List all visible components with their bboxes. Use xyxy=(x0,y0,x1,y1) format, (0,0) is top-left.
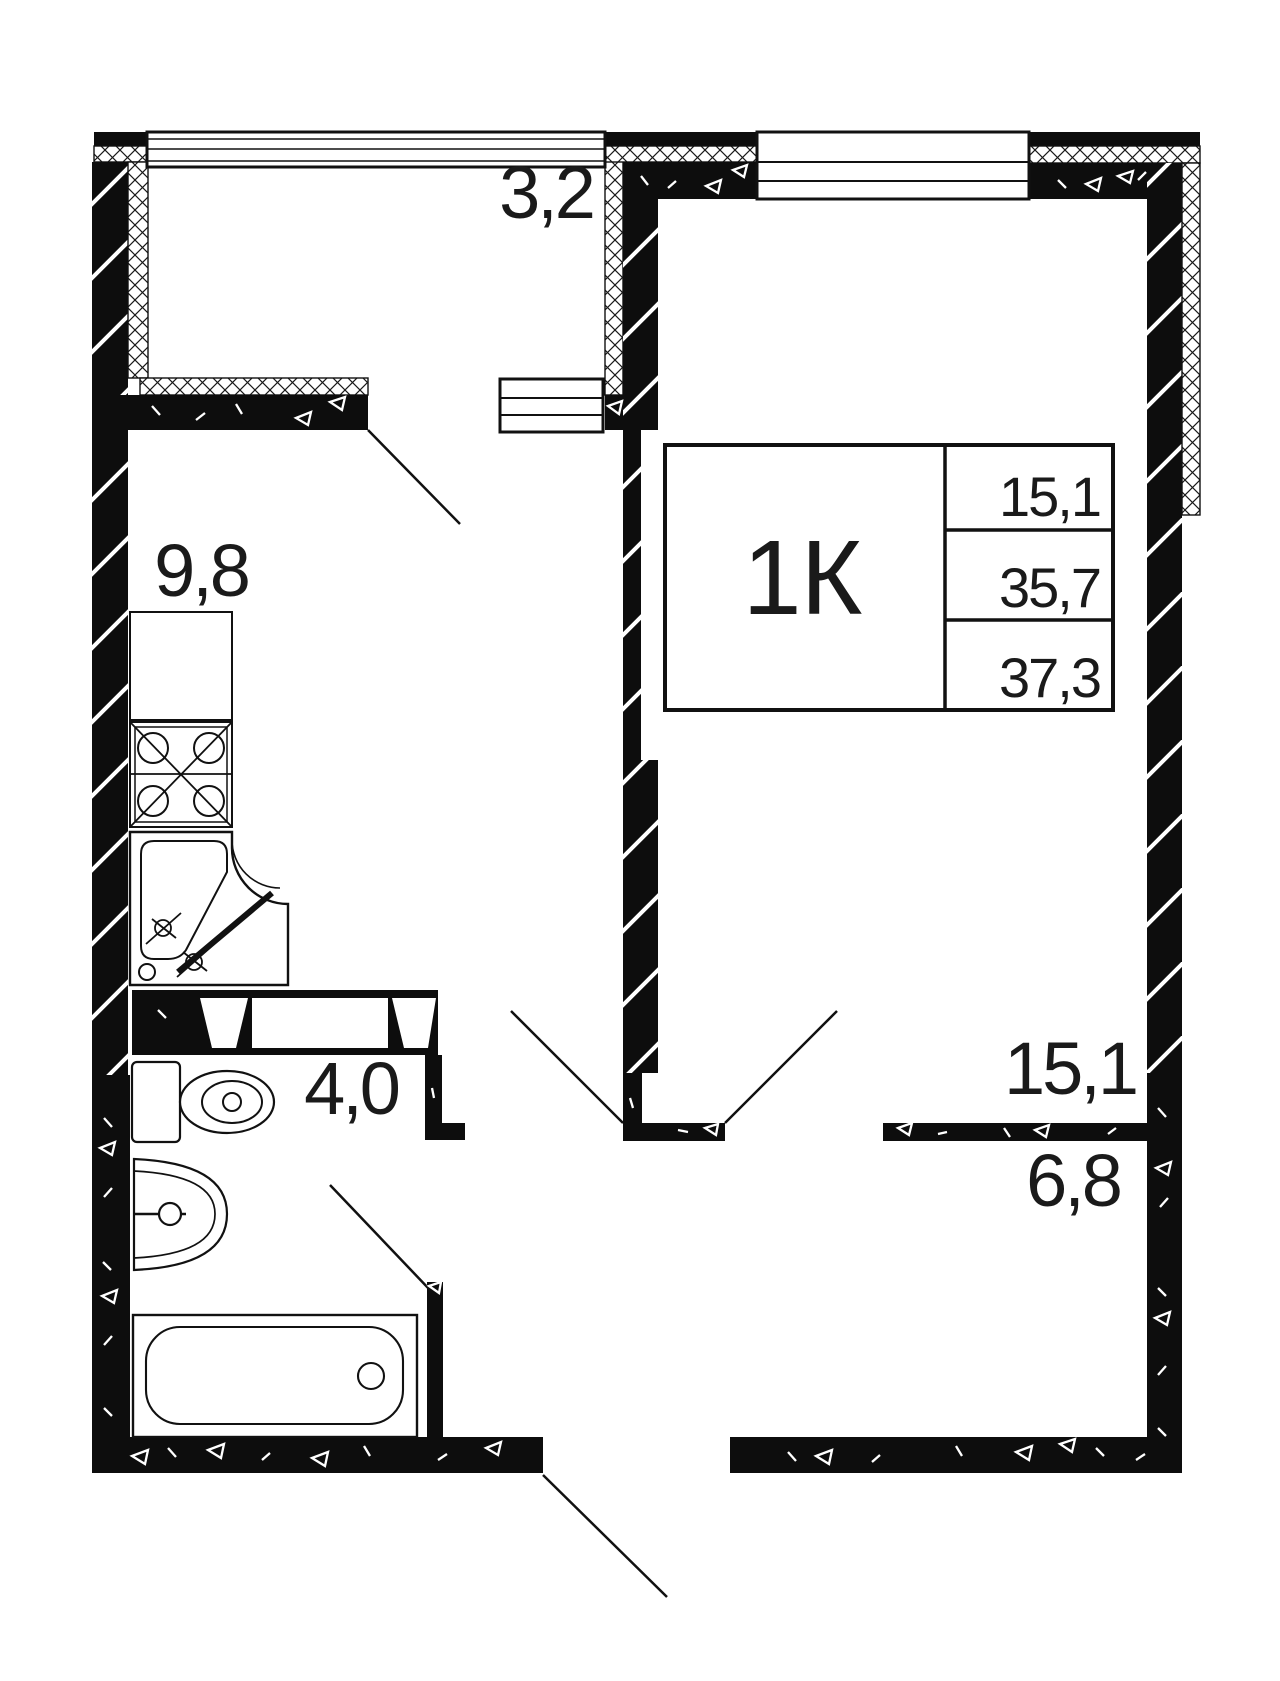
living-area-value: 15,1 xyxy=(999,465,1100,528)
kitchen-sink-icon xyxy=(130,832,288,985)
kitchen-window-icon xyxy=(500,379,603,432)
living-room-window-icon xyxy=(757,132,1029,199)
wall-top-right xyxy=(1029,132,1200,146)
wall-bottom-right xyxy=(730,1437,1182,1473)
walls xyxy=(92,132,1200,1473)
insulation-balcony-bottom xyxy=(140,378,368,395)
insulation-top-middle xyxy=(605,146,757,162)
hallway-area-label: 6,8 xyxy=(1026,1139,1120,1222)
title-block: 1К 15,1 35,7 37,3 xyxy=(665,445,1113,710)
kitchen-door-swing-icon xyxy=(511,1011,623,1123)
balcony-area-label: 3,2 xyxy=(499,151,593,234)
insulation-right xyxy=(1182,163,1200,515)
wall-top-middle xyxy=(605,132,757,146)
wall-room-divider-step xyxy=(641,430,658,760)
washbasin-icon xyxy=(133,1159,227,1270)
insulation-top-left xyxy=(94,146,147,162)
insulation-balcony-divider xyxy=(605,143,623,395)
vent-duct-center xyxy=(252,998,388,1048)
wall-top-left-pier xyxy=(94,132,147,146)
living-room-door-swing-icon xyxy=(725,1011,837,1123)
unit-type-label: 1К xyxy=(743,519,863,637)
wall-bathroom-jamb xyxy=(425,1055,465,1140)
wall-room-divider-jamb xyxy=(623,1073,642,1123)
kitchen-area-label: 9,8 xyxy=(154,529,248,612)
bathroom-area-label: 4,0 xyxy=(304,1047,399,1130)
stove-icon xyxy=(130,722,232,827)
wall-bathroom-lower xyxy=(427,1282,443,1437)
bathtub-icon xyxy=(133,1315,417,1437)
wall-balcony-bottom xyxy=(92,395,368,430)
wall-left-outer xyxy=(92,162,128,1075)
total-area-value: 35,7 xyxy=(999,556,1100,619)
insulation-top-right xyxy=(1029,146,1200,163)
wall-right-outer xyxy=(1147,163,1182,1073)
bathtub-drain-icon xyxy=(358,1363,384,1389)
insulation-left-balcony xyxy=(128,162,148,378)
wall-left-lower xyxy=(92,1075,130,1473)
wall-right-lower xyxy=(1147,1073,1182,1473)
kitchen-counter-icon xyxy=(130,612,232,720)
floor-plan-canvas: 3,2 9,8 4,0 15,1 6,8 1К 15,1 35,7 37,3 xyxy=(0,0,1280,1681)
entrance-door-swing-icon xyxy=(543,1475,667,1597)
total-area-with-balcony-value: 37,3 xyxy=(999,646,1100,709)
bathroom-door-swing-icon xyxy=(330,1185,430,1290)
balcony-door-swing-icon xyxy=(368,430,460,524)
living-room-area-label: 15,1 xyxy=(1004,1027,1136,1110)
toilet-icon xyxy=(132,1062,274,1142)
floor-plan: 3,2 9,8 4,0 15,1 6,8 1К 15,1 35,7 37,3 xyxy=(0,0,1280,1681)
